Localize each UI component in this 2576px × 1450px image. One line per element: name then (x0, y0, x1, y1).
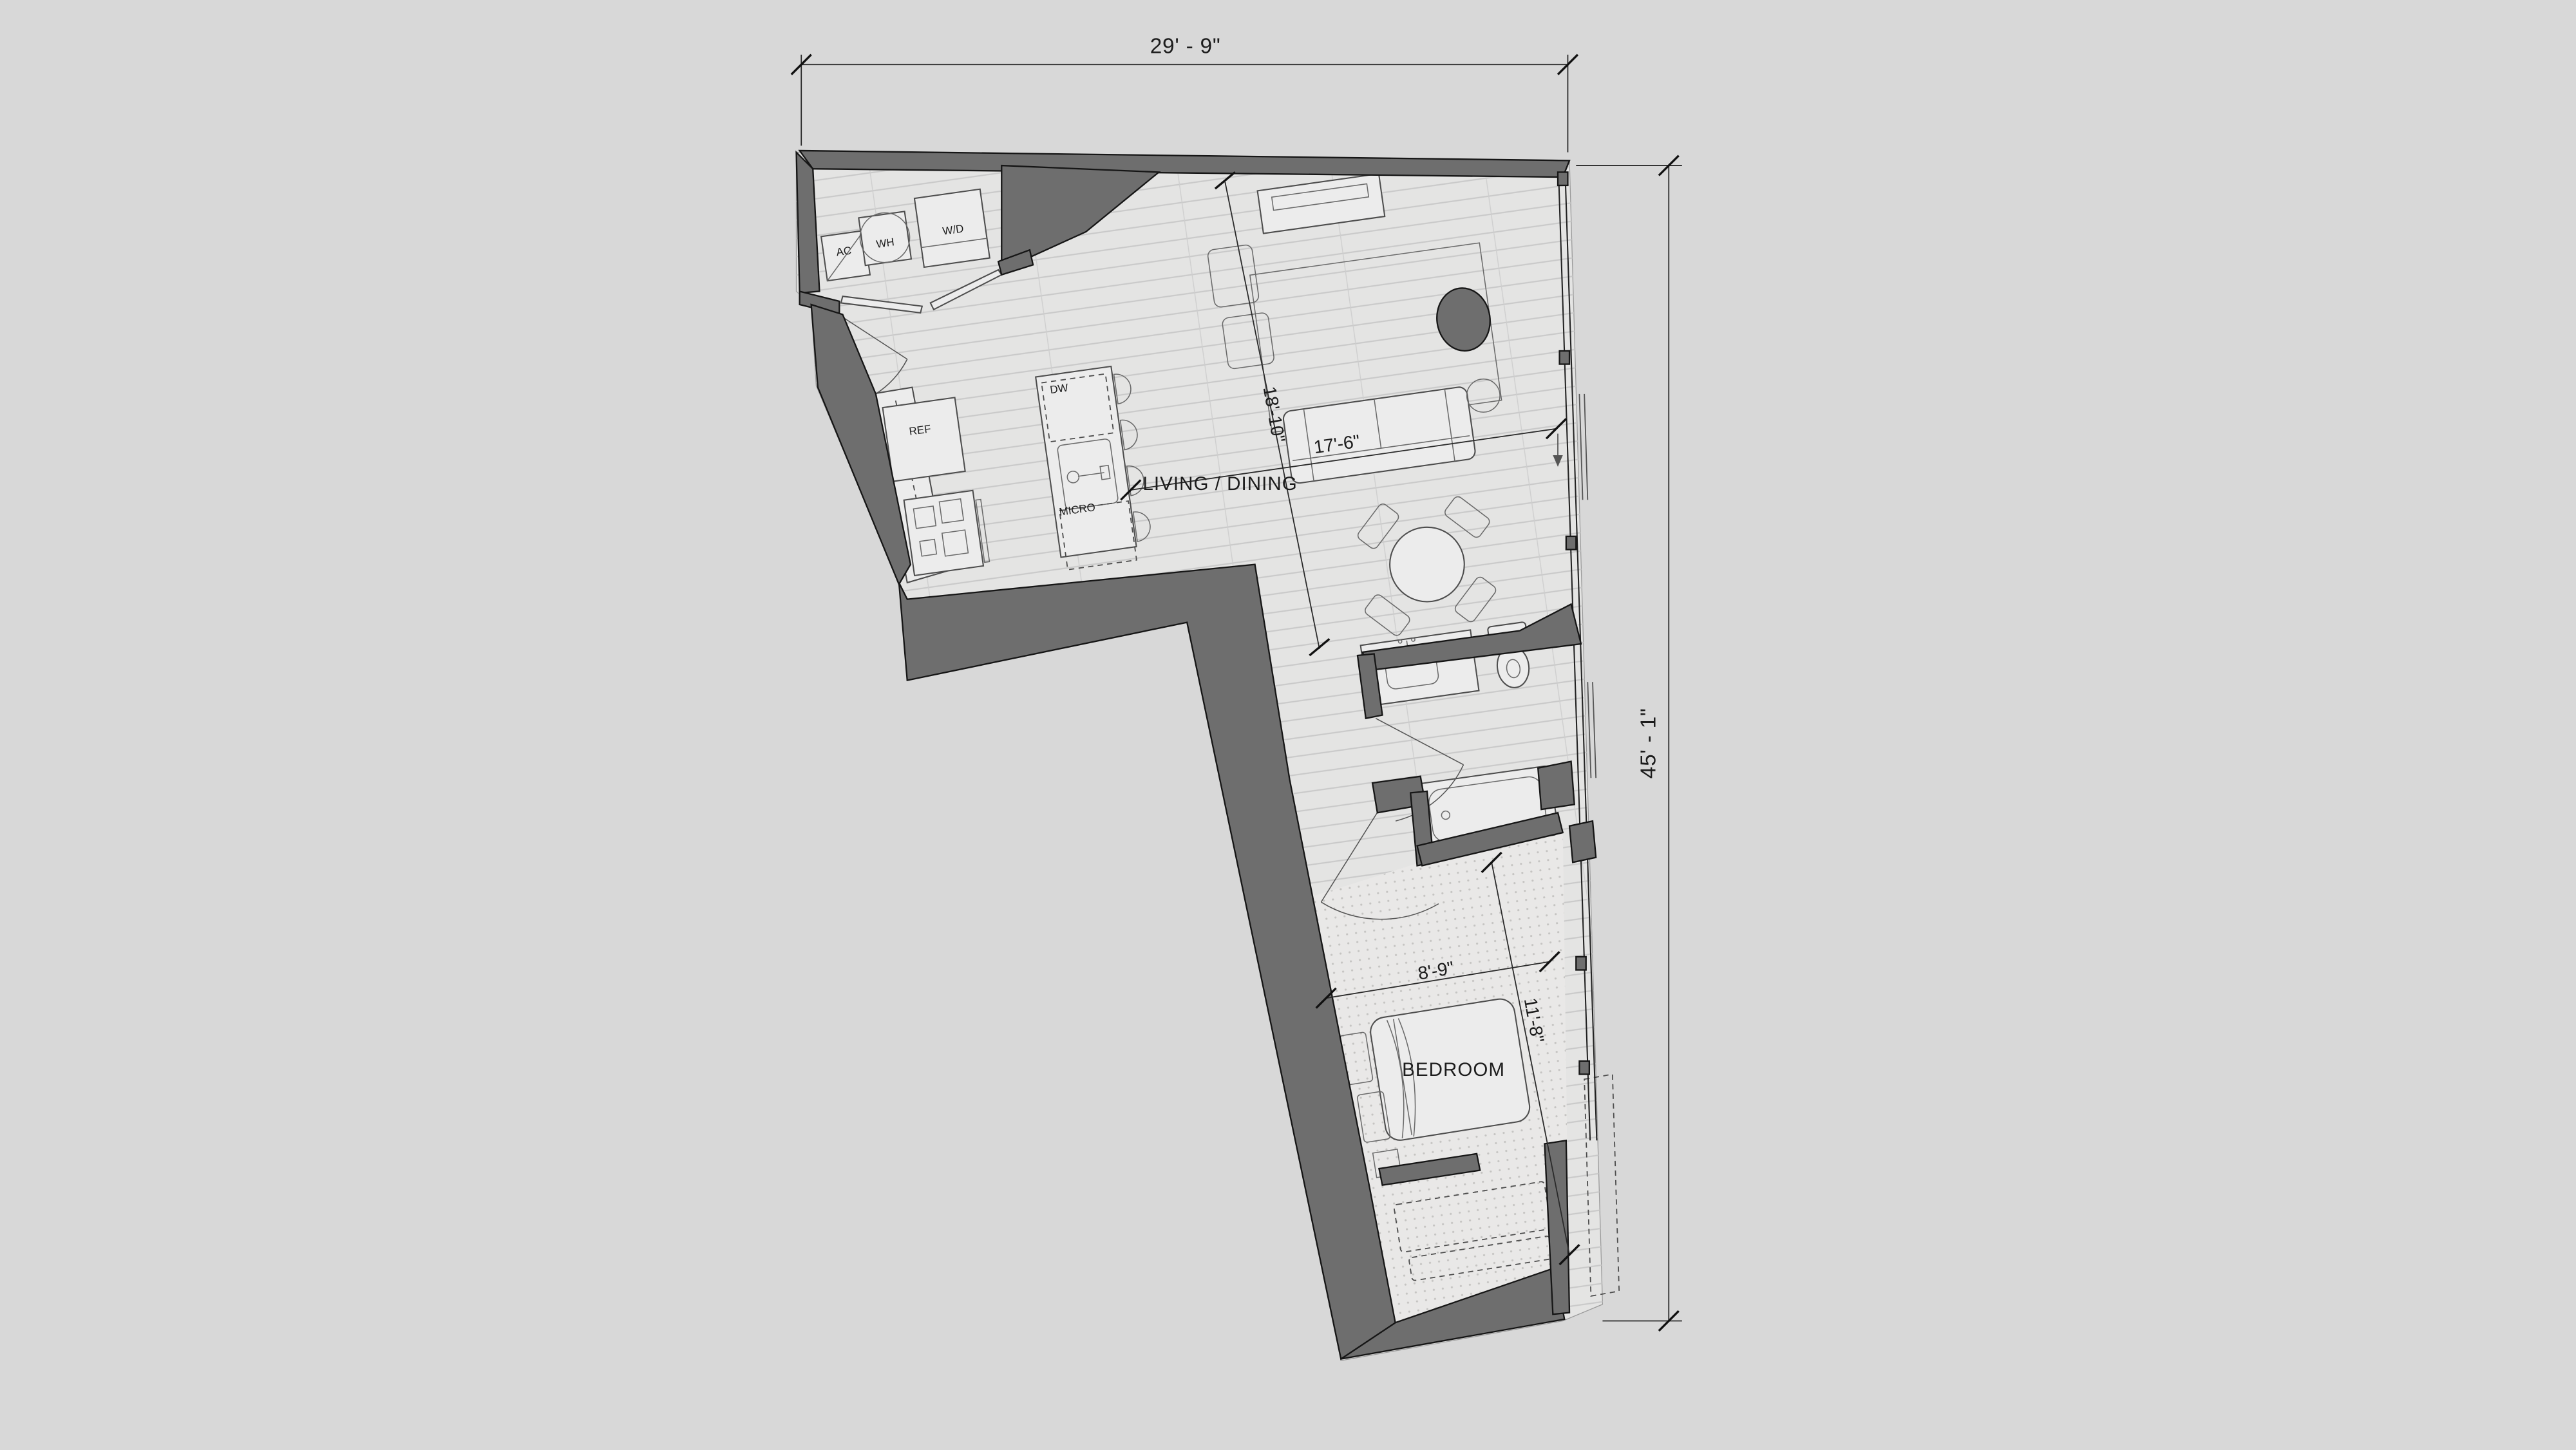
wall-bath-se-chunk (1569, 821, 1596, 862)
room-label-living: LIVING / DINING (1142, 473, 1297, 494)
dim-text-overall-height: 45' - 1" (1637, 708, 1661, 778)
wall-tub-east (1538, 762, 1575, 810)
floor-plan-canvas: 29' - 9" 45' - 1" 18'-10" 17'-6" 8'-9" 1… (0, 0, 2576, 1450)
refrigerator (883, 397, 965, 481)
window-mullion (1566, 536, 1576, 550)
window-mullion (1558, 172, 1567, 185)
room-label-bedroom: BEDROOM (1402, 1059, 1505, 1080)
label-wh: WH (875, 236, 895, 250)
window-mullion (1560, 351, 1569, 364)
window-mullion (1579, 1061, 1589, 1075)
floor-plan-page: 29' - 9" 45' - 1" 18'-10" 17'-6" 8'-9" 1… (0, 0, 2576, 1450)
window-mullion (1576, 957, 1586, 970)
label-ac: AC (835, 244, 852, 258)
dim-text-overall-width: 29' - 9" (1150, 34, 1221, 58)
label-dw: DW (1049, 381, 1069, 396)
